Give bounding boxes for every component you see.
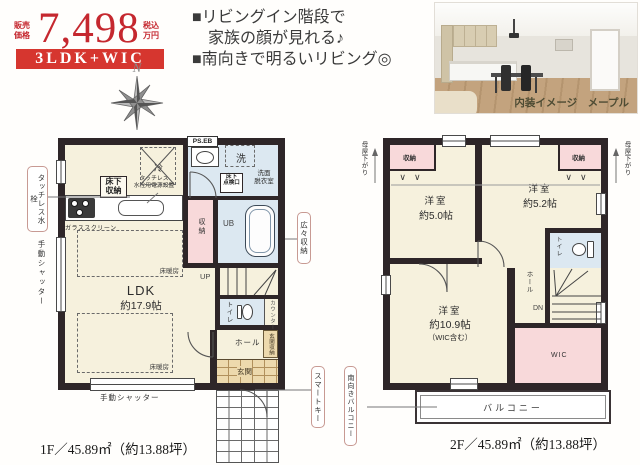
floorplan-flyer: 販売 価格 7,498 税込 万円 3LDK+WIC ■リビングイン階段で 家族… <box>0 0 640 465</box>
f1-entrance-area: 玄関 <box>217 359 278 383</box>
callout-roomy-storage: 広々収納 <box>297 212 311 264</box>
f2-closet-left: 収納 <box>390 145 436 171</box>
f2-window-north <box>442 135 466 147</box>
f2-room2-label: 洋室 <box>502 181 578 195</box>
washer-space-icon: 洗 <box>225 145 255 167</box>
f1-wall <box>210 330 217 383</box>
f1-storage: 収納 <box>188 200 213 263</box>
f2-balcony-label: バルコニー <box>417 401 609 414</box>
f1-inspection-hatch-label: 床下 点検口 <box>220 173 243 193</box>
toilet-icon <box>572 241 596 258</box>
f2-room3-name: 洋室 約10.9帖 （WIC含む） <box>404 303 496 343</box>
f1-toilet-label: トイレ <box>223 301 233 324</box>
floor2-plan: 収納 ∨∨ 収納 ∨∨ トイレ WIC 洋室 約5.0帖 <box>383 138 608 390</box>
kitchen-sink-icon <box>118 200 164 216</box>
f1-wall <box>183 263 278 268</box>
photo-sofa <box>434 91 477 114</box>
f1-wall <box>213 200 218 263</box>
photo-door <box>590 29 620 91</box>
f2-window-west <box>381 275 391 295</box>
f1-porch <box>216 390 279 463</box>
sales-points: ■リビングイン階段で 家族の顔が見れる♪ ■南向きで明るいリビング◎ <box>192 7 392 70</box>
f1-window-west <box>56 237 66 312</box>
f1-ldk-label: LDK <box>85 283 197 298</box>
gas-stove-icon <box>68 198 95 218</box>
photo-table-leg <box>495 77 497 93</box>
price-label: 販売 価格 <box>14 21 30 41</box>
f2-wic: WIC <box>515 328 601 383</box>
f1-counter-label: カウンター <box>268 300 276 330</box>
price-unit: 税込 万円 <box>143 21 159 41</box>
toilet-icon <box>237 303 253 321</box>
callout-smart-key: スマートキー <box>311 366 325 428</box>
f2-closet-left-label: 収納 <box>403 152 416 162</box>
f1-unit-bath-label: UB <box>223 219 234 228</box>
f1-pipe-space-label: PS.EB <box>187 136 218 147</box>
f2-window-south <box>450 378 478 390</box>
f1-floor-heating-zone: 床暖房 <box>77 313 173 373</box>
f1-shutter-left-label: 手動シャッター <box>36 240 47 307</box>
price-value: 7,498 <box>38 4 140 53</box>
sales-point-line: 家族の顔が見れる♪ <box>192 28 392 49</box>
callout-touchless-faucet: タッチレス水栓 <box>27 166 48 232</box>
f1-floor-heating-label: 床暖房 <box>160 265 180 275</box>
f1-floor-heating-label: 床暖房 <box>150 361 170 371</box>
f2-room3-size: 約10.9帖 <box>404 317 496 332</box>
photo-chair <box>521 65 531 91</box>
closet-hanger-icon: ∨∨ <box>394 172 434 183</box>
f1-entrance-storage: 玄関収納 <box>263 330 278 358</box>
f1-wall <box>183 145 188 268</box>
f1-wall <box>183 196 278 200</box>
f2-stairs-down-label: DN <box>533 305 543 312</box>
f2-room2-name: 洋室 約5.2帖 <box>502 181 578 210</box>
refrigerator-space-icon: 冷 <box>140 147 176 185</box>
sales-point-line: ■リビングイン階段で <box>192 7 392 28</box>
f2-wall <box>475 145 482 242</box>
f2-wall <box>390 258 482 264</box>
f2-window-east <box>596 302 606 324</box>
callout-south-balcony: 南向きバルコニー <box>344 366 357 446</box>
f2-hall-label: ホール <box>523 271 533 294</box>
f1-wall <box>215 295 278 299</box>
f2-wic-label: WIC <box>551 352 568 359</box>
compass-icon: N <box>106 60 168 132</box>
f2-room1-name: 洋室 約5.0帖 <box>400 193 472 222</box>
f2-toilet-label: トイレ <box>554 236 563 257</box>
floor1-area-label: 1F／45.89㎡（約13.88坪） <box>40 438 196 458</box>
f1-washroom-label: 洗面 脱衣室 <box>249 170 279 187</box>
f1-washer-label: 洗 <box>236 150 246 165</box>
interior-photo: 内装イメージ メープル <box>434 2 638 114</box>
f1-underfloor-storage-label: 床下 収納 <box>100 176 127 198</box>
photo-upper-cabinets <box>453 25 497 47</box>
f2-sloped-ceiling-right-label: 母屋下がり <box>621 141 631 176</box>
f1-shutter-bottom-label: 手動シャッター <box>100 392 160 403</box>
f1-fridge-label: 冷 <box>154 161 163 174</box>
f1-hall-label: ホール <box>235 337 261 348</box>
photo-table-leg <box>535 77 537 93</box>
floor2-area-label: 2F／45.89㎡（約13.88坪） <box>450 433 606 453</box>
f2-wall <box>507 268 515 383</box>
f1-ldk-name: LDK 約17.9帖 <box>85 283 197 313</box>
photo-pendant-light <box>513 19 515 33</box>
photo-chair <box>501 65 511 91</box>
f2-closet-right-label: 収納 <box>572 152 585 162</box>
f2-room3-note: （WIC含む） <box>404 332 496 343</box>
f2-room1-label: 洋室 <box>400 193 472 207</box>
sales-point-line: ■南向きで明るいリビング◎ <box>192 49 392 70</box>
f1-window-west-small <box>56 160 66 184</box>
f2-closet-right: 収納 <box>558 145 601 171</box>
floor1-plan: 収納 ガラススクリーン タッチレス 水栓用電源設置 床下 収納 冷 <box>58 138 285 390</box>
f2-sloped-ceiling-left-label: 母屋下がり <box>358 141 368 176</box>
f1-floor-heating-zone: 床暖房 <box>77 230 183 277</box>
f2-window-east <box>596 193 606 215</box>
f1-kitchen-counter <box>65 195 183 221</box>
f2-room1-size: 約5.0帖 <box>400 207 472 222</box>
photo-caption: 内装イメージ メープル <box>514 95 629 110</box>
f2-room3-label: 洋室 <box>404 303 496 317</box>
f1-storage-label: 収納 <box>196 218 206 236</box>
bathtub-icon <box>245 205 275 257</box>
f1-ldk-size: 約17.9帖 <box>85 298 197 313</box>
compass-n-label: N <box>132 60 143 75</box>
f2-balcony: バルコニー <box>415 390 611 424</box>
f2-room2-size: 約5.2帖 <box>502 195 578 210</box>
f1-entrance-label: 玄関 <box>237 366 252 377</box>
f1-window-south <box>90 378 195 391</box>
photo-pendant-shade <box>509 33 519 38</box>
f1-stairs-up-label: UP <box>200 272 210 281</box>
f2-toilet-room: トイレ <box>550 233 601 268</box>
washbasin-icon <box>191 147 219 167</box>
photo-wall-art <box>555 39 573 51</box>
f2-window-north <box>490 135 540 147</box>
